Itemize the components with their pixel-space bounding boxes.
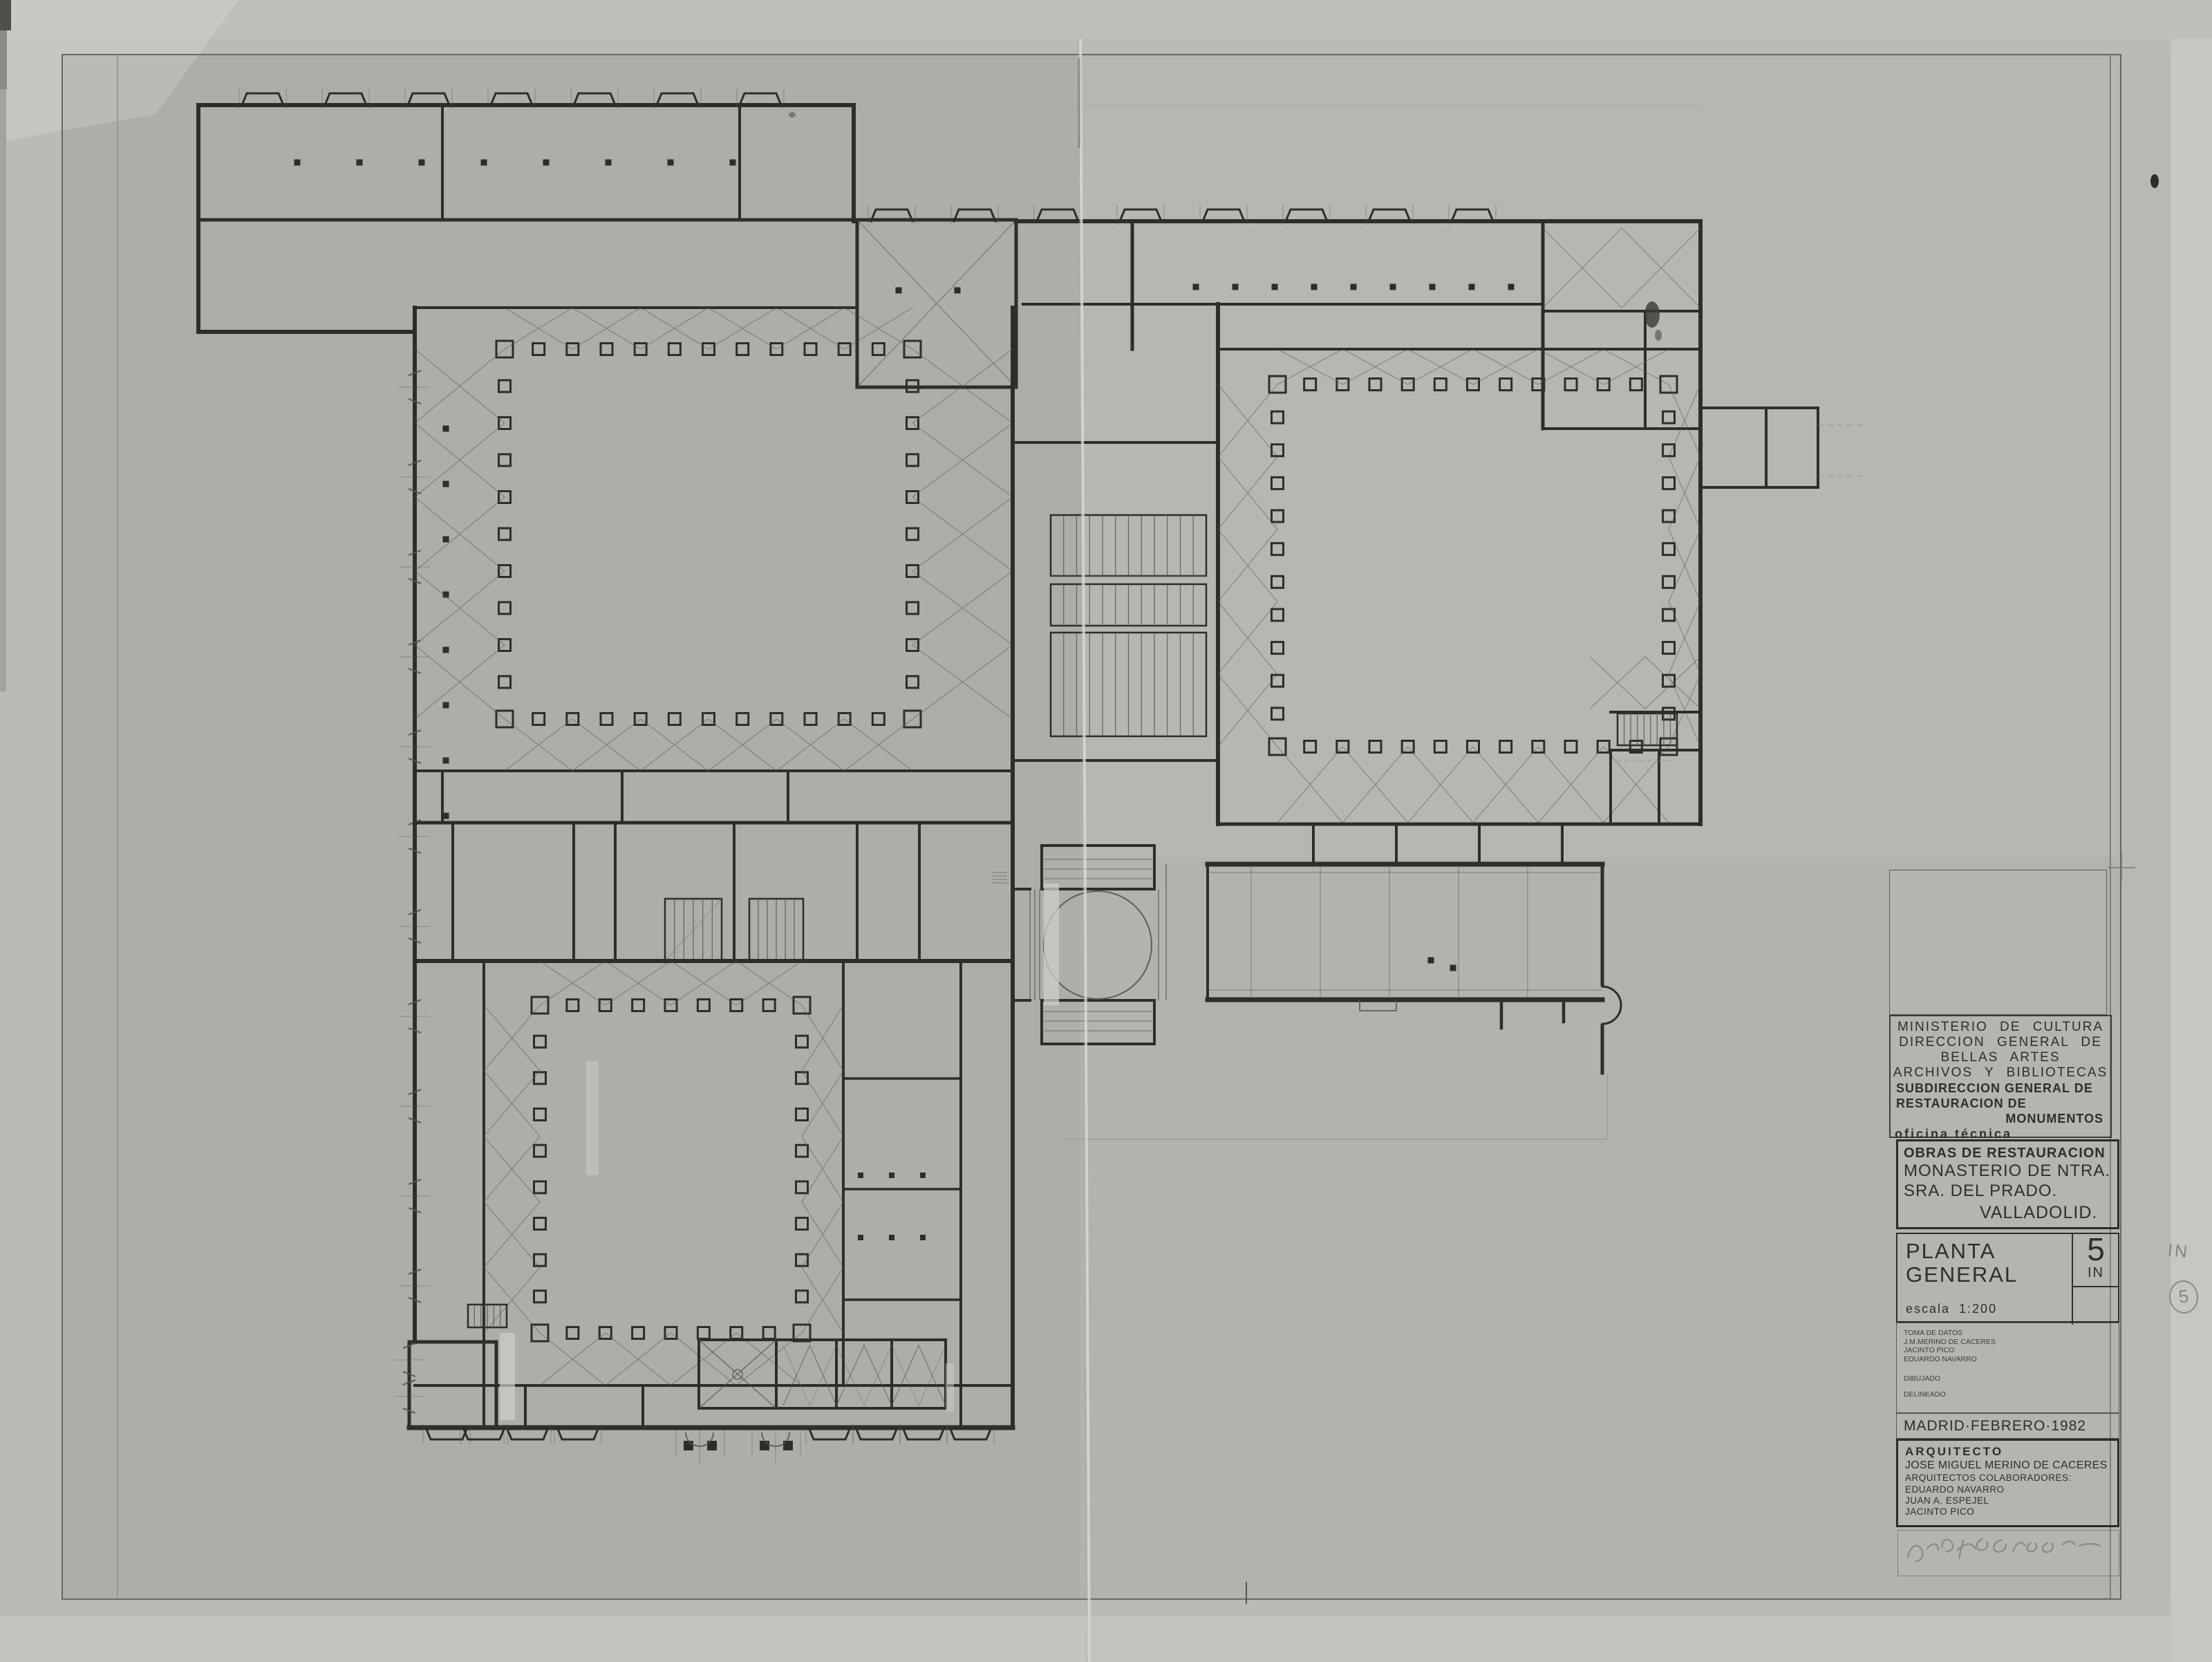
agency-line: BELLAS ARTES bbox=[1891, 1050, 2110, 1065]
title-block-empty-box bbox=[1889, 870, 2107, 1015]
sheet-number-box: 5 IN bbox=[2072, 1233, 2119, 1287]
project-box: OBRAS DE RESTAURACION MONASTERIO DE NTRA… bbox=[1896, 1139, 2119, 1229]
drawing-title-box: PLANTA GENERAL escala 1:200 5 IN bbox=[1896, 1233, 2119, 1323]
sheet-number: 5 bbox=[2073, 1233, 2119, 1265]
ink-smudge bbox=[1644, 301, 1660, 328]
handwritten-margin-note: IN bbox=[2167, 1240, 2191, 1262]
delineado-label: DELINEADO bbox=[1904, 1390, 2112, 1399]
ink-smudge bbox=[2150, 174, 2159, 188]
drawing-title: PLANTA GENERAL bbox=[1906, 1240, 2018, 1287]
paper-background bbox=[0, 0, 2212, 1662]
agency-line: DIRECCION GENERAL DE bbox=[1891, 1035, 2110, 1050]
collaborators-label: ARQUITECTOS COLABORADORES: bbox=[1905, 1472, 2110, 1484]
project-name-line1: MONASTERIO DE NTRA. bbox=[1904, 1161, 2112, 1181]
toma-name: JACINTO PICO bbox=[1904, 1346, 2112, 1355]
architect-name: JOSE MIGUEL MERINO DE CACERES bbox=[1905, 1459, 2110, 1472]
toma-name: EDUARDO NAVARRO bbox=[1904, 1355, 2112, 1364]
dibujado-label: DIBUJADO bbox=[1904, 1374, 2112, 1383]
collaborator-name: EDUARDO NAVARRO bbox=[1905, 1484, 2110, 1495]
scanned-architectural-sheet: { "sheet": { "agency_lines": ["MINISTERI… bbox=[0, 0, 2212, 1662]
architect-signature bbox=[1898, 1531, 2118, 1575]
erasure-streak bbox=[586, 1061, 599, 1175]
erasure-streak bbox=[500, 1333, 515, 1420]
signature-box bbox=[1897, 1530, 2119, 1576]
project-name-line2: SRA. DEL PRADO. bbox=[1904, 1181, 2112, 1202]
collaborator-name: JACINTO PICO bbox=[1905, 1506, 2110, 1518]
subdirection-line: MONUMENTOS bbox=[1891, 1111, 2110, 1126]
toma-name: J.M.MERINO DE CACERES bbox=[1904, 1338, 2112, 1347]
date-box: MADRID·FEBRERO·1982 bbox=[1896, 1413, 2119, 1439]
collaborator-name: JUAN A. ESPEJEL bbox=[1905, 1495, 2110, 1506]
agency-line: ARCHIVOS Y BIBLIOTECAS bbox=[1891, 1065, 2110, 1081]
sheet-suffix: IN bbox=[2073, 1265, 2119, 1280]
subdirection-line: SUBDIRECCION GENERAL DE bbox=[1891, 1081, 2110, 1096]
toma-de-datos-label: TOMA DE DATOS bbox=[1904, 1329, 2112, 1338]
agency-line: MINISTERIO DE CULTURA bbox=[1891, 1020, 2110, 1035]
sheet-number-sub-box bbox=[2072, 1287, 2119, 1325]
floor-plan-canvas bbox=[0, 0, 2212, 1662]
credits-box: TOMA DE DATOS J.M.MERINO DE CACERES JACI… bbox=[1896, 1323, 2119, 1413]
project-city: VALLADOLID. bbox=[1904, 1202, 2112, 1224]
scale-label: escala 1:200 bbox=[1906, 1302, 1997, 1316]
agency-box: MINISTERIO DE CULTURA DIRECCION GENERAL … bbox=[1889, 1015, 2112, 1138]
architect-label: ARQUITECTO bbox=[1905, 1444, 2110, 1459]
architect-box: ARQUITECTO JOSE MIGUEL MERINO DE CACERES… bbox=[1896, 1439, 2119, 1527]
subdirection-line: RESTAURACION DE bbox=[1891, 1096, 2110, 1111]
project-heading: OBRAS DE RESTAURACION bbox=[1904, 1145, 2112, 1161]
erasure-streak bbox=[1044, 884, 1059, 1005]
title-block: MINISTERIO DE CULTURA DIRECCION GENERAL … bbox=[1889, 870, 2126, 1585]
